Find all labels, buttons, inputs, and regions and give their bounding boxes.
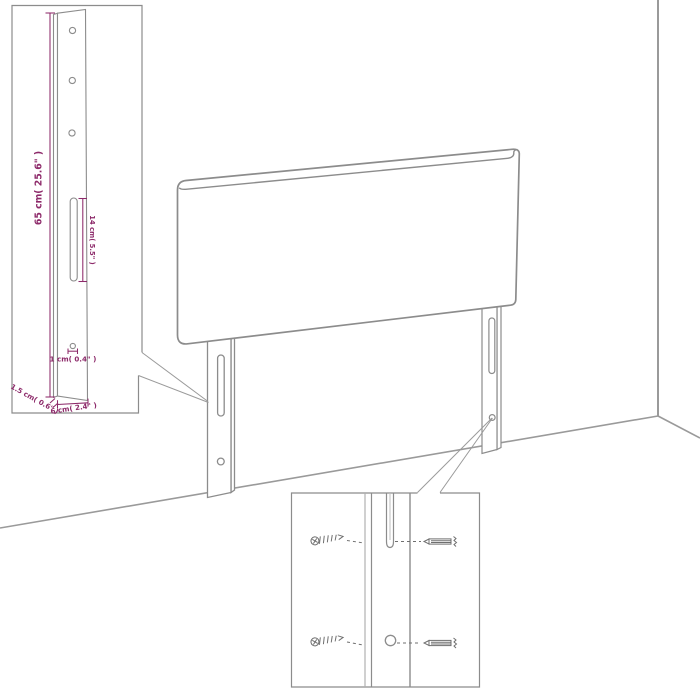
left-leg-hole bbox=[217, 458, 224, 465]
headboard-panel bbox=[178, 149, 520, 344]
screw-inset-frame bbox=[292, 493, 480, 687]
right-callout-line-right bbox=[440, 418, 493, 493]
floor-line-right bbox=[658, 416, 700, 438]
dimension-label-slot: 14 cm( 5.5" ) bbox=[88, 215, 96, 264]
inset-post-side-face bbox=[54, 13, 58, 397]
headboard-assembly-diagram: 65 cm( 25.6" ) 14 cm( 5.5" ) 1 cm( 0.4" … bbox=[0, 0, 700, 700]
inset-post-slot bbox=[70, 198, 77, 281]
inset-post-hole-2 bbox=[69, 77, 75, 83]
inset-post-hole-1 bbox=[69, 27, 75, 33]
screw-detail-inset bbox=[292, 493, 480, 687]
left-leg-slot bbox=[218, 355, 225, 416]
leg-dimension-inset: 65 cm( 25.6" ) 14 cm( 5.5" ) 1 cm( 0.4" … bbox=[9, 6, 142, 416]
dimension-label-height: 65 cm( 25.6" ) bbox=[34, 151, 45, 225]
headboard-left-leg bbox=[208, 327, 235, 498]
inset2-hole bbox=[385, 635, 395, 645]
headboard-panel-outline bbox=[178, 149, 520, 344]
inset-post-small-hole bbox=[70, 343, 75, 348]
left-callout-line-lower bbox=[139, 376, 209, 403]
headboard-right-leg bbox=[482, 301, 501, 454]
left-callout-wedge bbox=[139, 353, 209, 403]
right-leg-slot bbox=[489, 318, 495, 374]
left-callout-line-upper bbox=[142, 353, 208, 402]
dimension-label-hole: 1 cm( 0.4" ) bbox=[50, 355, 97, 364]
diagram-canvas: 65 cm( 25.6" ) 14 cm( 5.5" ) 1 cm( 0.4" … bbox=[0, 0, 700, 700]
inset-post-hole-3 bbox=[69, 130, 75, 136]
